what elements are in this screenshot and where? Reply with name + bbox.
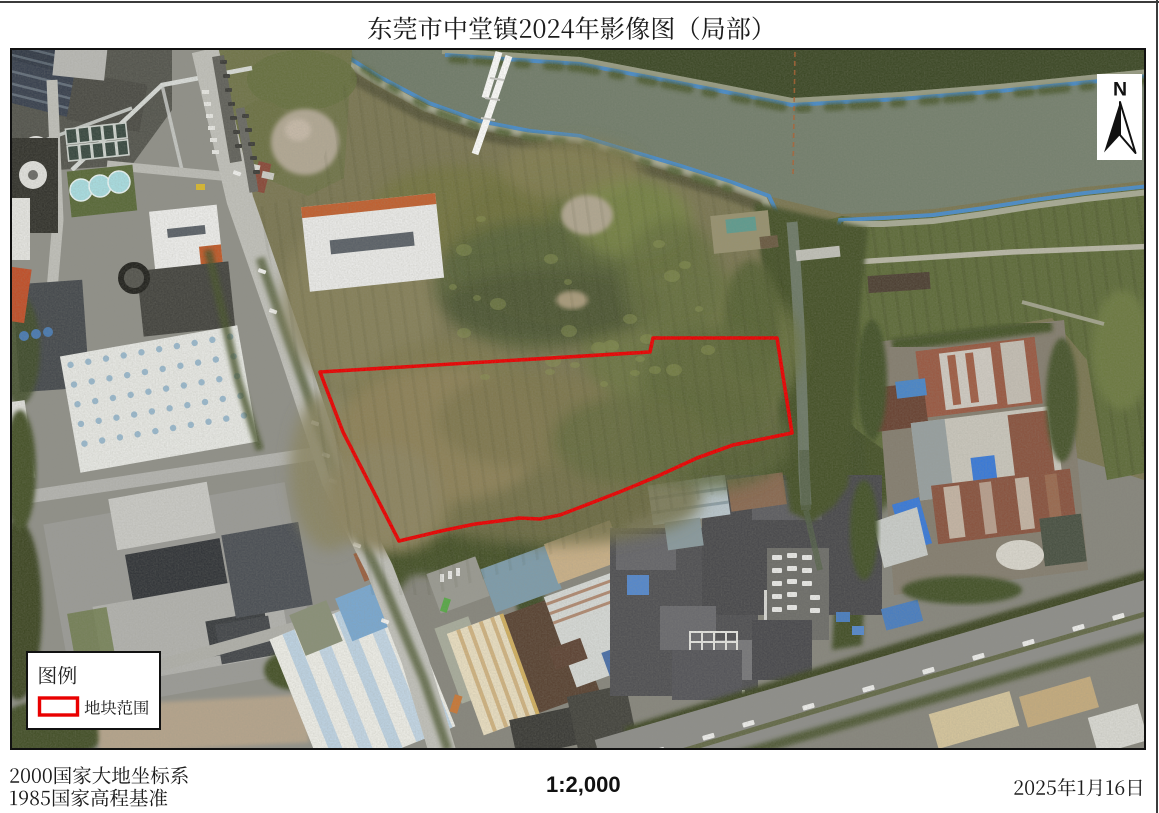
svg-text:N: N bbox=[1113, 79, 1127, 101]
